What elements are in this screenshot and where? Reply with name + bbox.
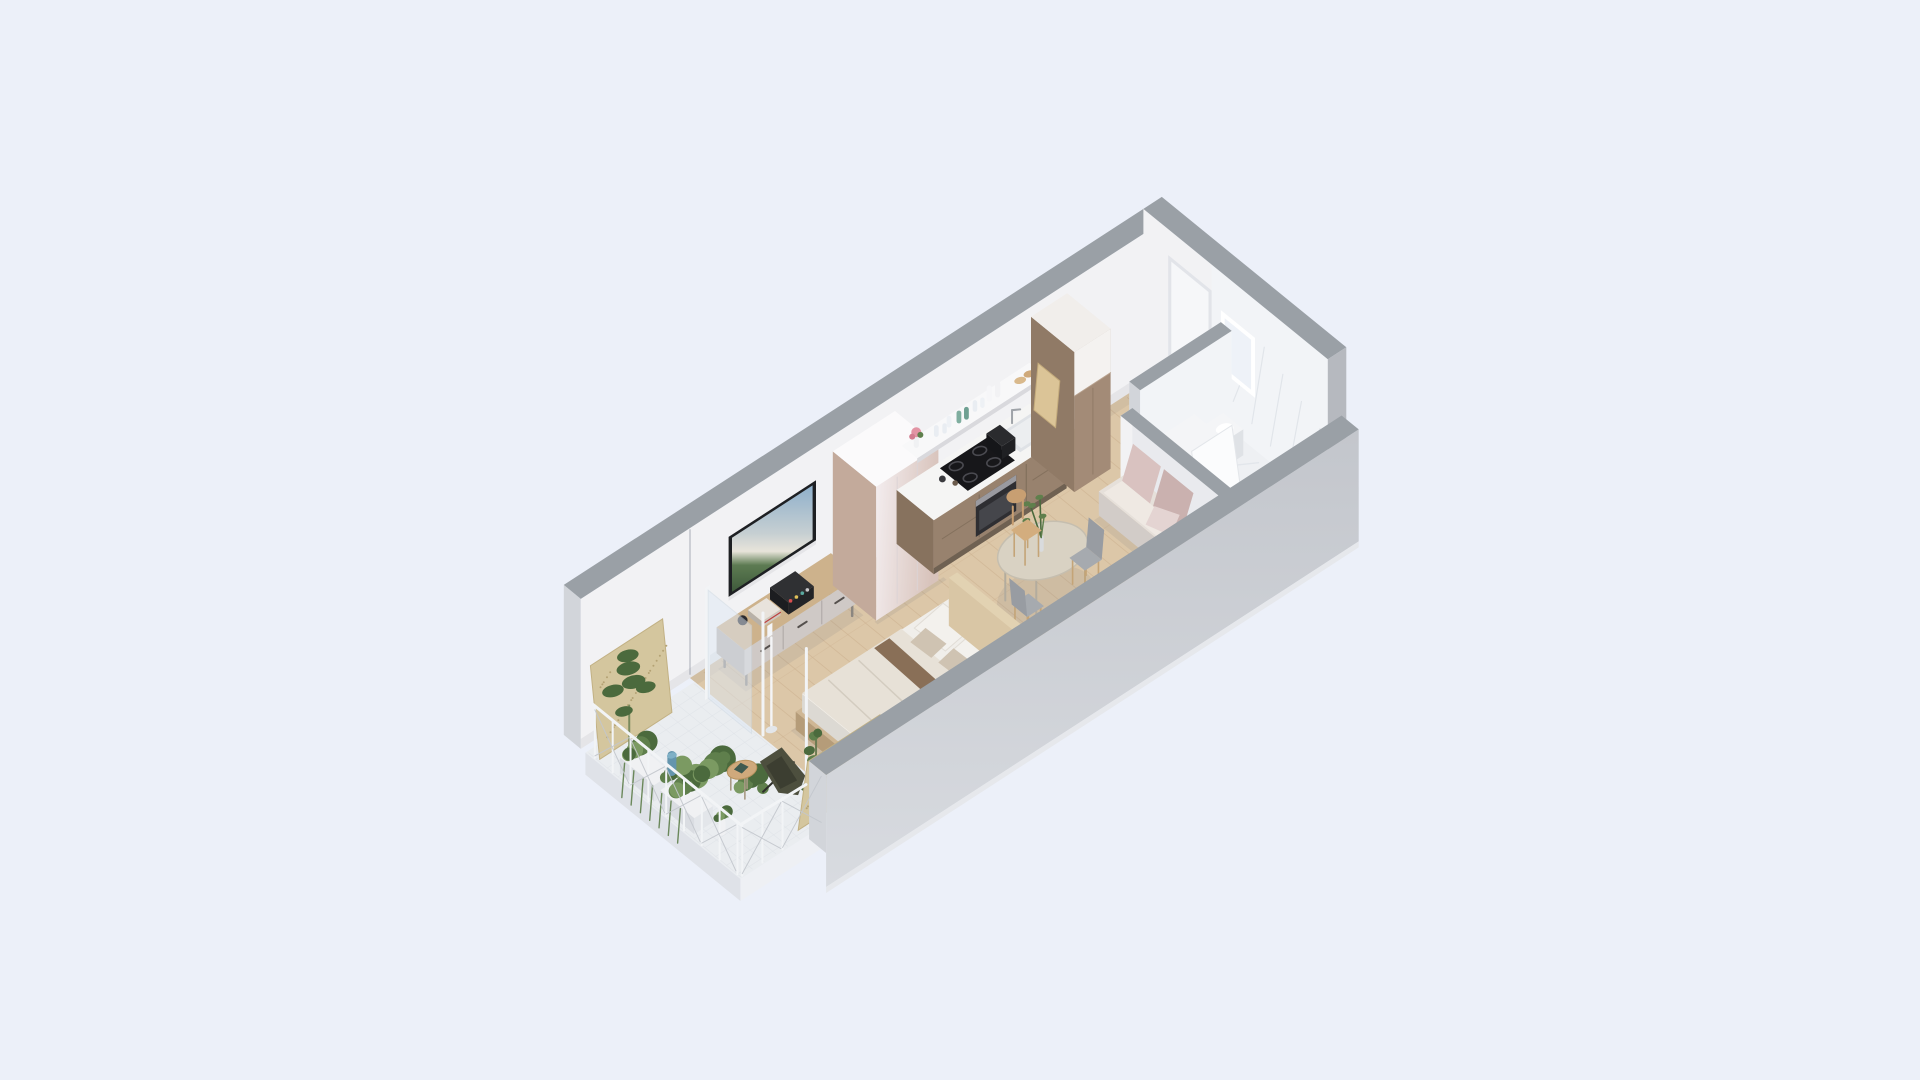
apartment-isometric-scene	[0, 0, 1920, 1080]
floorplan-render	[0, 0, 1920, 1080]
